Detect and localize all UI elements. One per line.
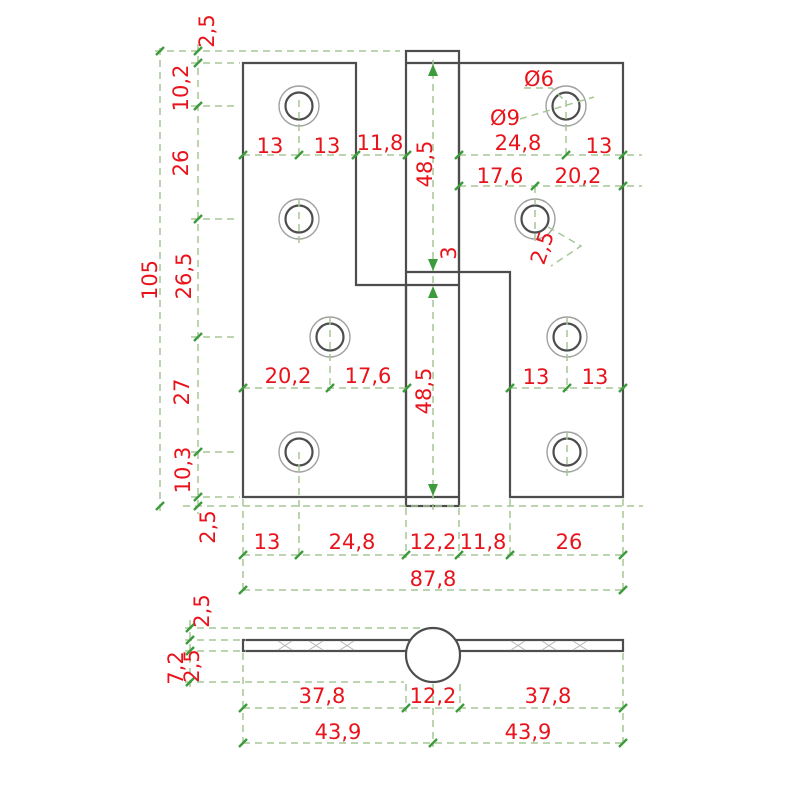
dim-label-27: 27 bbox=[170, 379, 194, 406]
dim-label-13: 13 bbox=[254, 530, 281, 554]
dim-label-11-8: 11,8 bbox=[460, 530, 507, 554]
dim-label-13: 13 bbox=[582, 365, 609, 389]
dim-label-48-5-lower: 48,5 bbox=[412, 368, 436, 415]
dim-label-37-8: 37,8 bbox=[299, 684, 346, 708]
drawing-canvas: 2,5 10,2 26 26,5 27 10,3 2,5 105 48,5 3 … bbox=[0, 0, 797, 800]
dim-label-43-9: 43,9 bbox=[315, 720, 362, 744]
dim-label-48-5-upper: 48,5 bbox=[413, 141, 437, 188]
dim-label-12-2: 12,2 bbox=[410, 530, 457, 554]
dim-label-10-3: 10,3 bbox=[171, 447, 195, 494]
dim-label-24-8: 24,8 bbox=[329, 530, 376, 554]
dim-label-2-5-bottom: 2,5 bbox=[196, 510, 220, 543]
drawing-background bbox=[0, 0, 797, 800]
dim-label-26-5: 26,5 bbox=[172, 253, 196, 300]
dim-label-17-6: 17,6 bbox=[345, 364, 392, 388]
dim-label-26: 26 bbox=[556, 530, 583, 554]
dim-label-24-8: 24,8 bbox=[495, 131, 542, 155]
dim-label-2-5-profile-top: 2,5 bbox=[190, 594, 214, 627]
dim-label-20-2: 20,2 bbox=[265, 364, 312, 388]
dim-label-12-2: 12,2 bbox=[410, 684, 457, 708]
dim-label-11-8: 11,8 bbox=[357, 131, 404, 155]
dim-label-13: 13 bbox=[257, 134, 284, 158]
dim-label-13: 13 bbox=[314, 134, 341, 158]
dim-label-3: 3 bbox=[437, 246, 461, 259]
dim-label-37-8: 37,8 bbox=[525, 684, 572, 708]
knuckle-profile-circle bbox=[406, 628, 460, 682]
dim-label-105: 105 bbox=[138, 260, 162, 300]
dim-label-dia9: Ø9 bbox=[490, 106, 520, 130]
dim-label-7-2: 7,2 bbox=[164, 651, 188, 684]
dim-label-13: 13 bbox=[523, 365, 550, 389]
dim-label-87-8: 87,8 bbox=[410, 567, 457, 591]
dim-label-43-9: 43,9 bbox=[505, 720, 552, 744]
dim-label-20-2: 20,2 bbox=[555, 164, 602, 188]
dim-label-26: 26 bbox=[169, 150, 193, 177]
dim-label-17-6: 17,6 bbox=[477, 164, 524, 188]
hinge-technical-drawing: 2,5 10,2 26 26,5 27 10,3 2,5 105 48,5 3 … bbox=[0, 0, 797, 800]
dim-label-2-5-top: 2,5 bbox=[195, 14, 219, 47]
dim-label-10-2: 10,2 bbox=[169, 65, 193, 112]
dim-label-13: 13 bbox=[586, 134, 613, 158]
dim-label-dia6: Ø6 bbox=[524, 67, 554, 91]
